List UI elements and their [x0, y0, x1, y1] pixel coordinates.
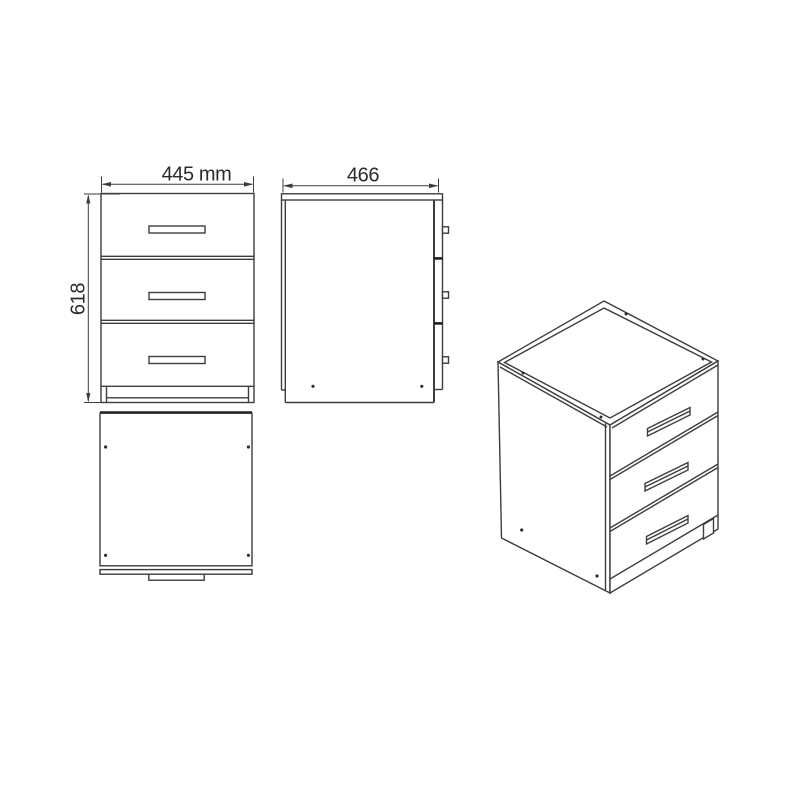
side-handle-tab	[443, 227, 449, 233]
side-view	[282, 194, 449, 403]
height-dimension-label: 618	[68, 283, 90, 315]
front-drawer-handle	[149, 293, 205, 300]
screw-hole-dot	[247, 554, 250, 557]
front-view	[101, 194, 254, 403]
screw-hole-dot	[104, 554, 107, 557]
side-top-panel	[282, 194, 443, 200]
width-dimension-label: 445 mm	[162, 164, 232, 186]
screw-hole-dot	[520, 528, 523, 531]
top-handle-outline	[149, 574, 204, 580]
arrow-down-icon	[86, 393, 90, 402]
screw-hole-dot	[595, 574, 598, 577]
arrow-left-icon	[102, 182, 112, 187]
arrow-up-icon	[86, 194, 90, 203]
side-handle-tab	[443, 292, 449, 298]
screw-hole-dot	[420, 385, 423, 388]
side-handle-tab	[443, 357, 449, 363]
depth-dimension-label: 466	[347, 165, 379, 187]
technical-drawing-canvas: 445 mm 618 466	[0, 0, 800, 800]
screw-hole-dot	[625, 313, 628, 316]
screw-hole-dot	[311, 385, 314, 388]
screw-hole-dot	[104, 445, 107, 448]
top-panel-outline	[100, 413, 252, 566]
screw-hole-dot	[247, 445, 250, 448]
screw-hole-dot	[522, 372, 525, 375]
front-drawer-handle	[149, 357, 205, 364]
isometric-view	[498, 301, 718, 593]
top-view	[100, 413, 252, 581]
screw-hole-dot	[702, 358, 705, 361]
drawing-svg: 445 mm 618 466	[0, 0, 800, 800]
front-drawer-handle	[149, 226, 205, 233]
arrow-right-icon	[429, 184, 439, 189]
arrow-left-icon	[283, 184, 293, 189]
depth-dimension: 466	[283, 165, 439, 193]
arrow-right-icon	[244, 182, 254, 187]
width-dimension: 445 mm	[102, 164, 254, 193]
screw-hole-dot	[600, 416, 603, 419]
